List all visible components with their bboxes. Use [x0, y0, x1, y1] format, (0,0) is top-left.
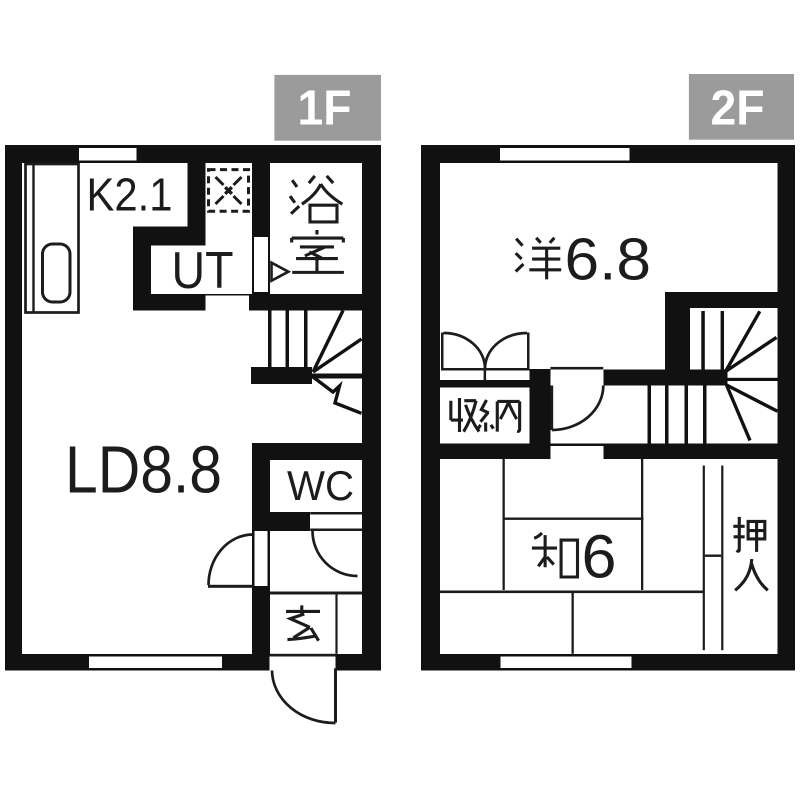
svg-text:UT: UT [172, 242, 234, 300]
svg-text:6.8: 6.8 [565, 227, 652, 293]
svg-text:1F: 1F [298, 82, 352, 136]
svg-text:6: 6 [582, 523, 617, 591]
svg-text:2F: 2F [711, 82, 765, 136]
svg-text:LD8.8: LD8.8 [65, 433, 222, 508]
svg-text:WC: WC [287, 462, 354, 509]
svg-text:K2.1: K2.1 [87, 168, 173, 220]
